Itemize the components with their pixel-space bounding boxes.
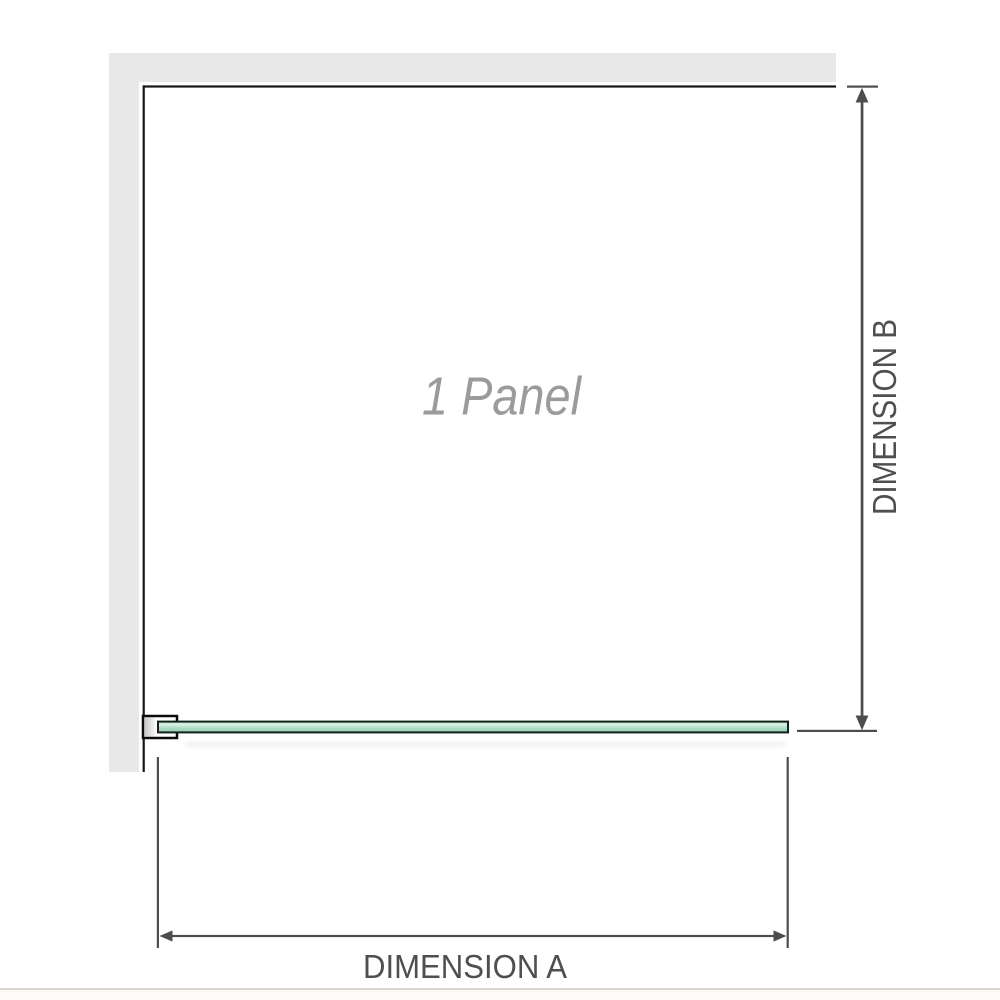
svg-text:DIMENSION A: DIMENSION A xyxy=(363,948,567,985)
svg-text:DIMENSION B: DIMENSION B xyxy=(866,319,903,515)
svg-text:1 Panel: 1 Panel xyxy=(422,367,583,427)
